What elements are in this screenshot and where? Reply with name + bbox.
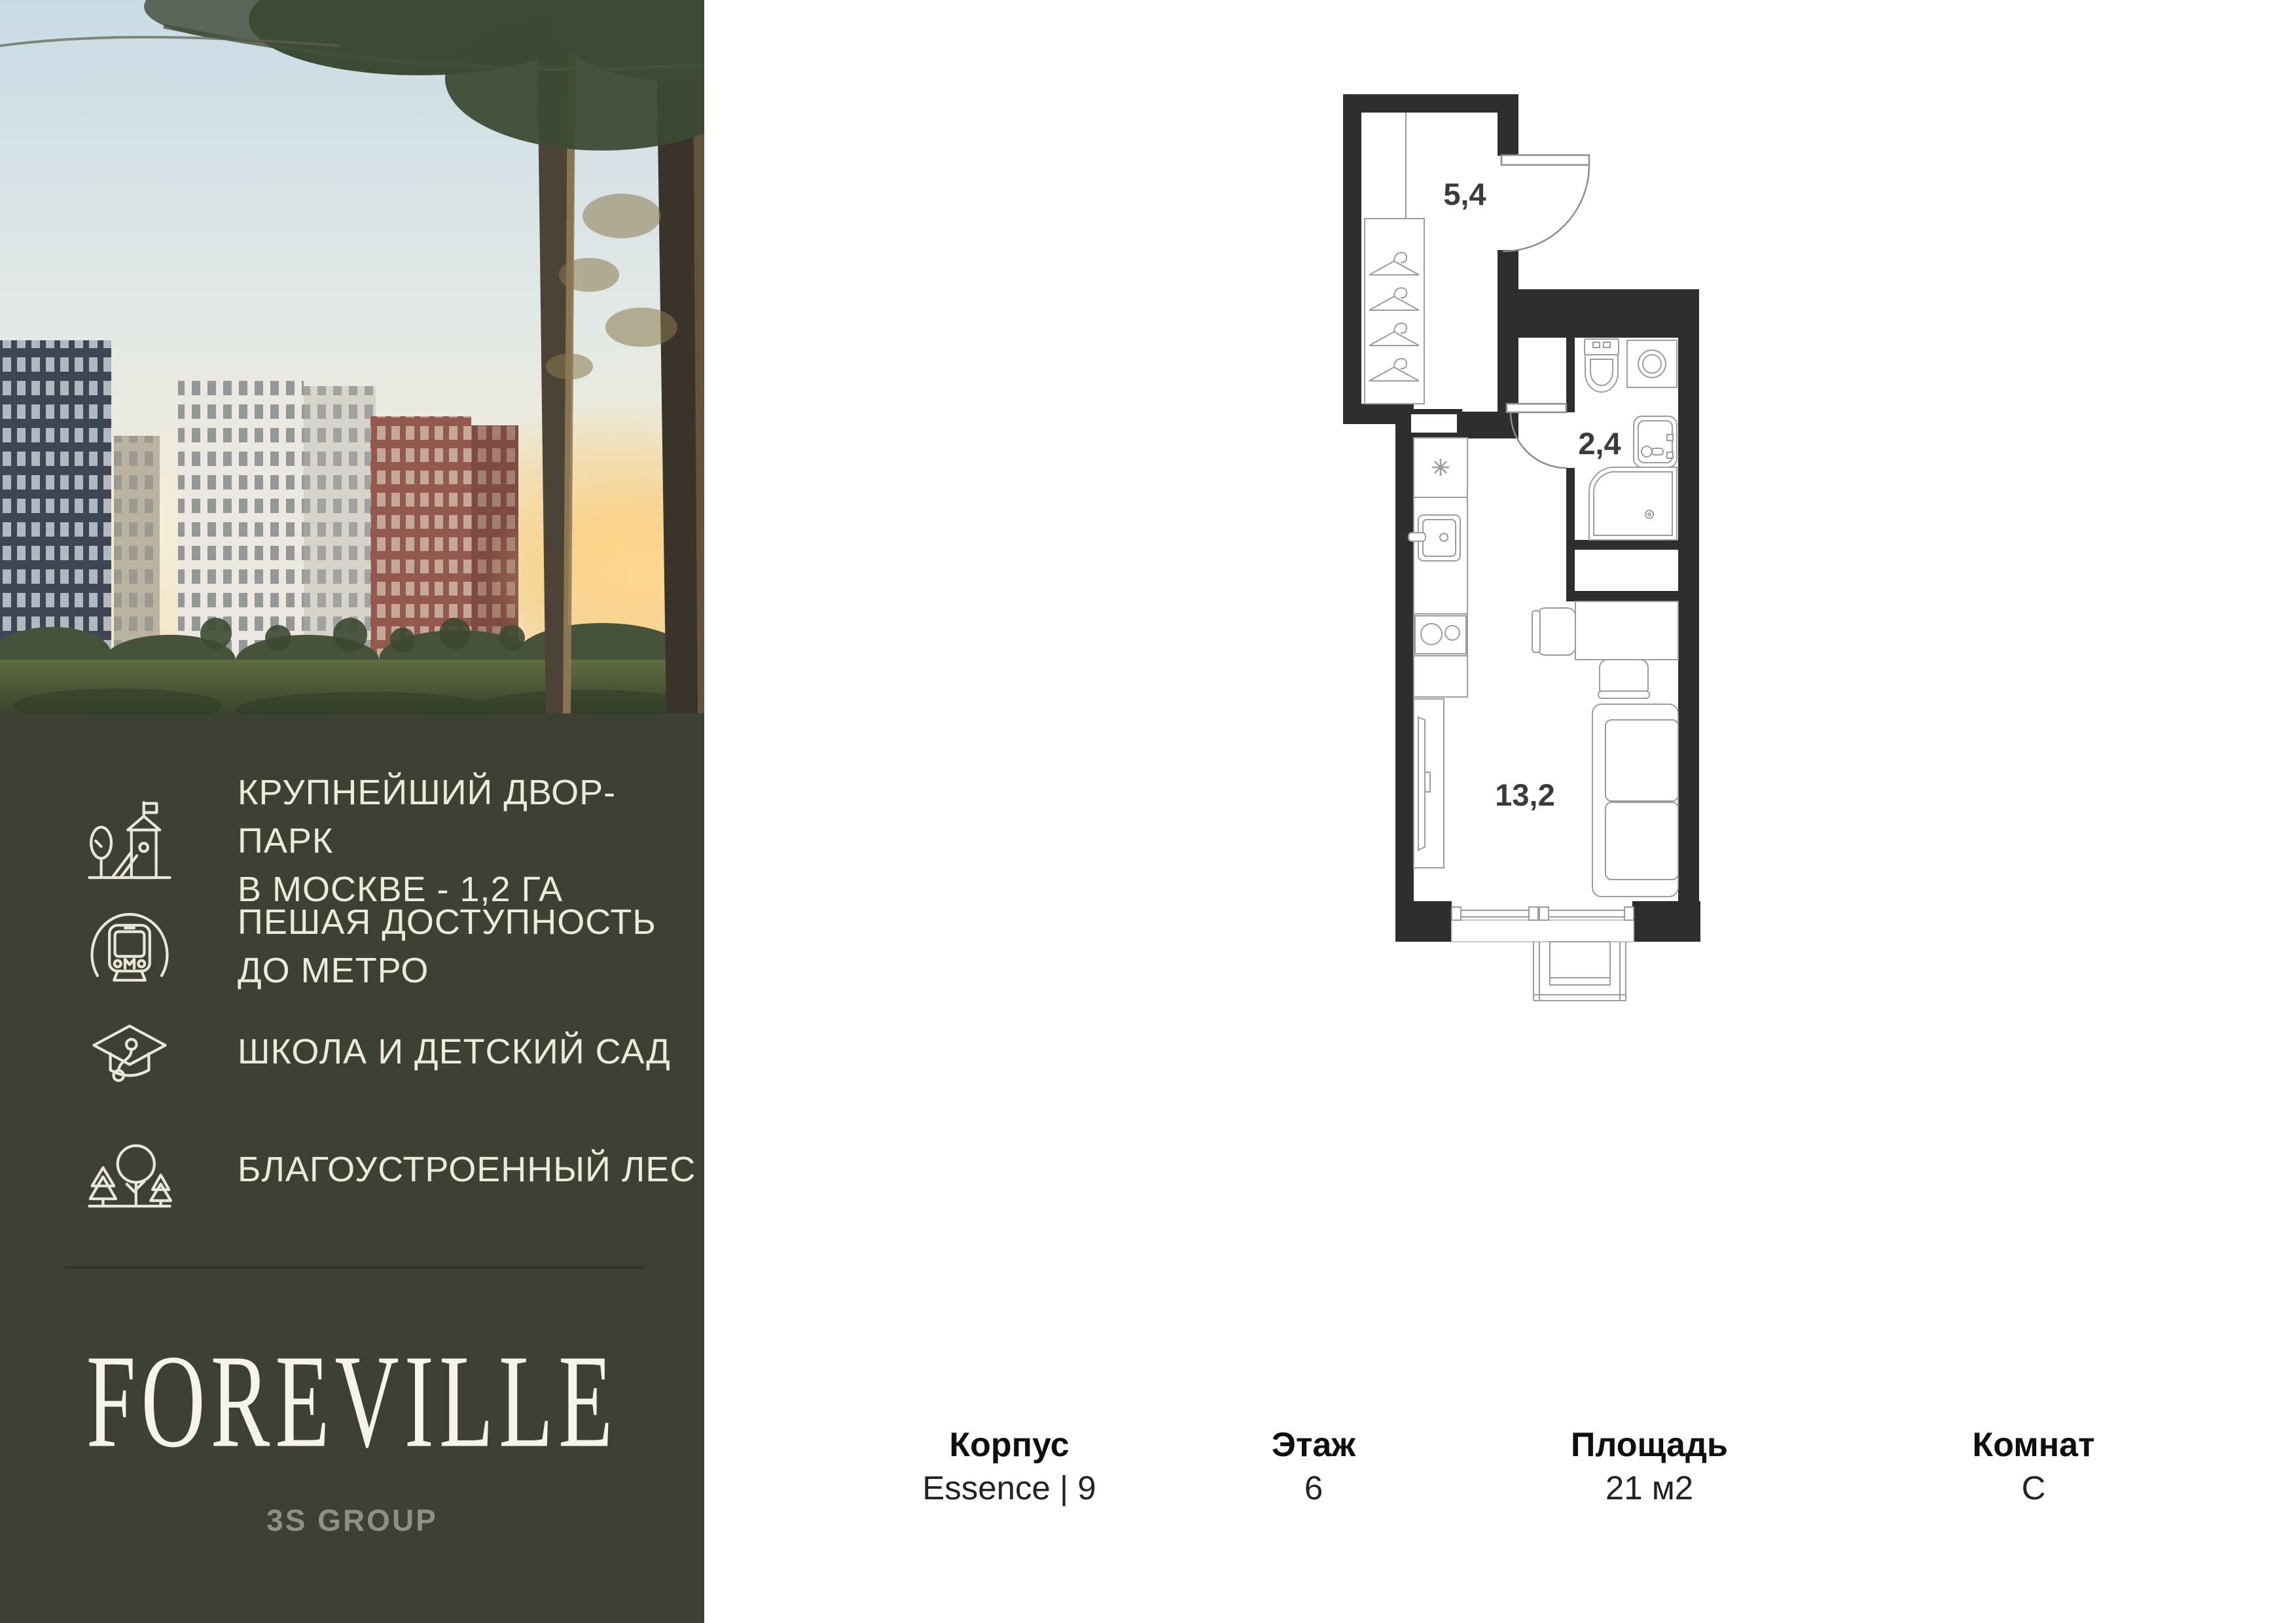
info-floor: Этаж 6 <box>1272 1427 1355 1507</box>
hero-photo <box>0 0 704 713</box>
info-value: Essence | 9 <box>922 1470 1096 1507</box>
info-value: 6 <box>1272 1470 1355 1507</box>
info-label: Корпус <box>922 1427 1096 1463</box>
bathtub <box>1589 467 1677 540</box>
tv-console <box>1414 699 1444 868</box>
info-value: С <box>1972 1470 2094 1507</box>
info-rooms: Комнат С <box>1972 1427 2094 1507</box>
room-area-label: 13,2 <box>1495 777 1554 812</box>
room-area-label: 5,4 <box>1443 177 1486 211</box>
bathroom-sink <box>1634 416 1677 467</box>
feature-school: ШКОЛА И ДЕТСКИЙ САД <box>0 996 704 1107</box>
info-area: Площадь 21 м2 <box>1571 1427 1728 1507</box>
info-label: Площадь <box>1571 1427 1728 1463</box>
feature-text: БЛАГОУСТРОЕННЫЙ ЛЕС <box>238 1145 696 1194</box>
entry-door <box>1501 155 1589 251</box>
foreville-logo: FOREVILLE <box>0 1325 704 1478</box>
chair <box>1598 660 1649 698</box>
feature-metro: ПЕШАЯ ДОСТУПНОСТЬ ДО МЕТРО <box>0 891 704 1002</box>
feature-park: КРУПНЕЙШИЙ ДВОР-ПАРК В МОСКВЕ - 1,2 ГА <box>0 785 704 897</box>
toilet <box>1585 339 1619 392</box>
info-label: Комнат <box>1972 1427 2094 1463</box>
playground-icon <box>84 792 175 890</box>
feature-text: ШКОЛА И ДЕТСКИЙ САД <box>238 1027 671 1076</box>
window <box>1452 907 1634 942</box>
vent-shaft <box>1411 414 1457 433</box>
info-value: 21 м2 <box>1571 1470 1728 1507</box>
hero-photo-illustration <box>0 0 704 713</box>
washing-machine <box>1627 340 1677 387</box>
balcony <box>1534 942 1626 1001</box>
hall-wardrobe <box>1365 113 1424 404</box>
info-label: Этаж <box>1272 1427 1355 1463</box>
kitchen-counter <box>1408 438 1467 697</box>
forest-icon <box>84 1120 175 1219</box>
table <box>1575 601 1678 660</box>
brochure-page: КРУПНЕЙШИЙ ДВОР-ПАРК В МОСКВЕ - 1,2 ГА П… <box>0 0 2296 1623</box>
school-icon <box>84 1003 175 1101</box>
feature-text: ПЕШАЯ ДОСТУПНОСТЬ ДО МЕТРО <box>238 898 656 995</box>
room-area-label: 2,4 <box>1578 426 1621 461</box>
info-building: Корпус Essence | 9 <box>922 1427 1096 1507</box>
sidebar: КРУПНЕЙШИЙ ДВОР-ПАРК В МОСКВЕ - 1,2 ГА П… <box>0 0 704 1623</box>
developer-logo: 3S GROUP <box>0 1503 704 1538</box>
feature-forest: БЛАГОУСТРОЕННЫЙ ЛЕС <box>0 1114 704 1225</box>
sidebar-divider <box>65 1266 644 1269</box>
floor-plan: 5,4 2,4 13,2 <box>1335 65 1767 1086</box>
metro-icon <box>84 897 175 995</box>
sofa <box>1592 704 1678 897</box>
chair <box>1532 608 1575 655</box>
